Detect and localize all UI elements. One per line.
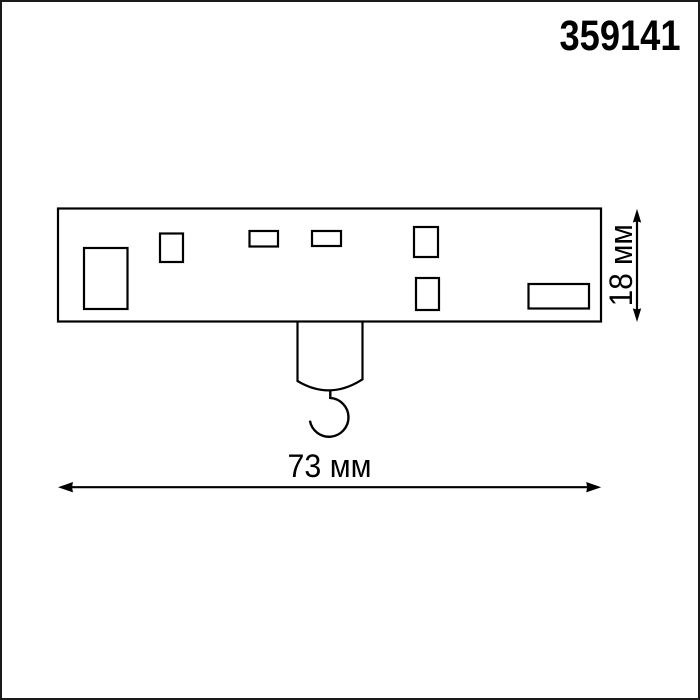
svg-text:359141: 359141 [560, 12, 681, 60]
svg-text:18 мм: 18 мм [603, 224, 639, 306]
svg-text:73 мм: 73 мм [288, 448, 372, 484]
